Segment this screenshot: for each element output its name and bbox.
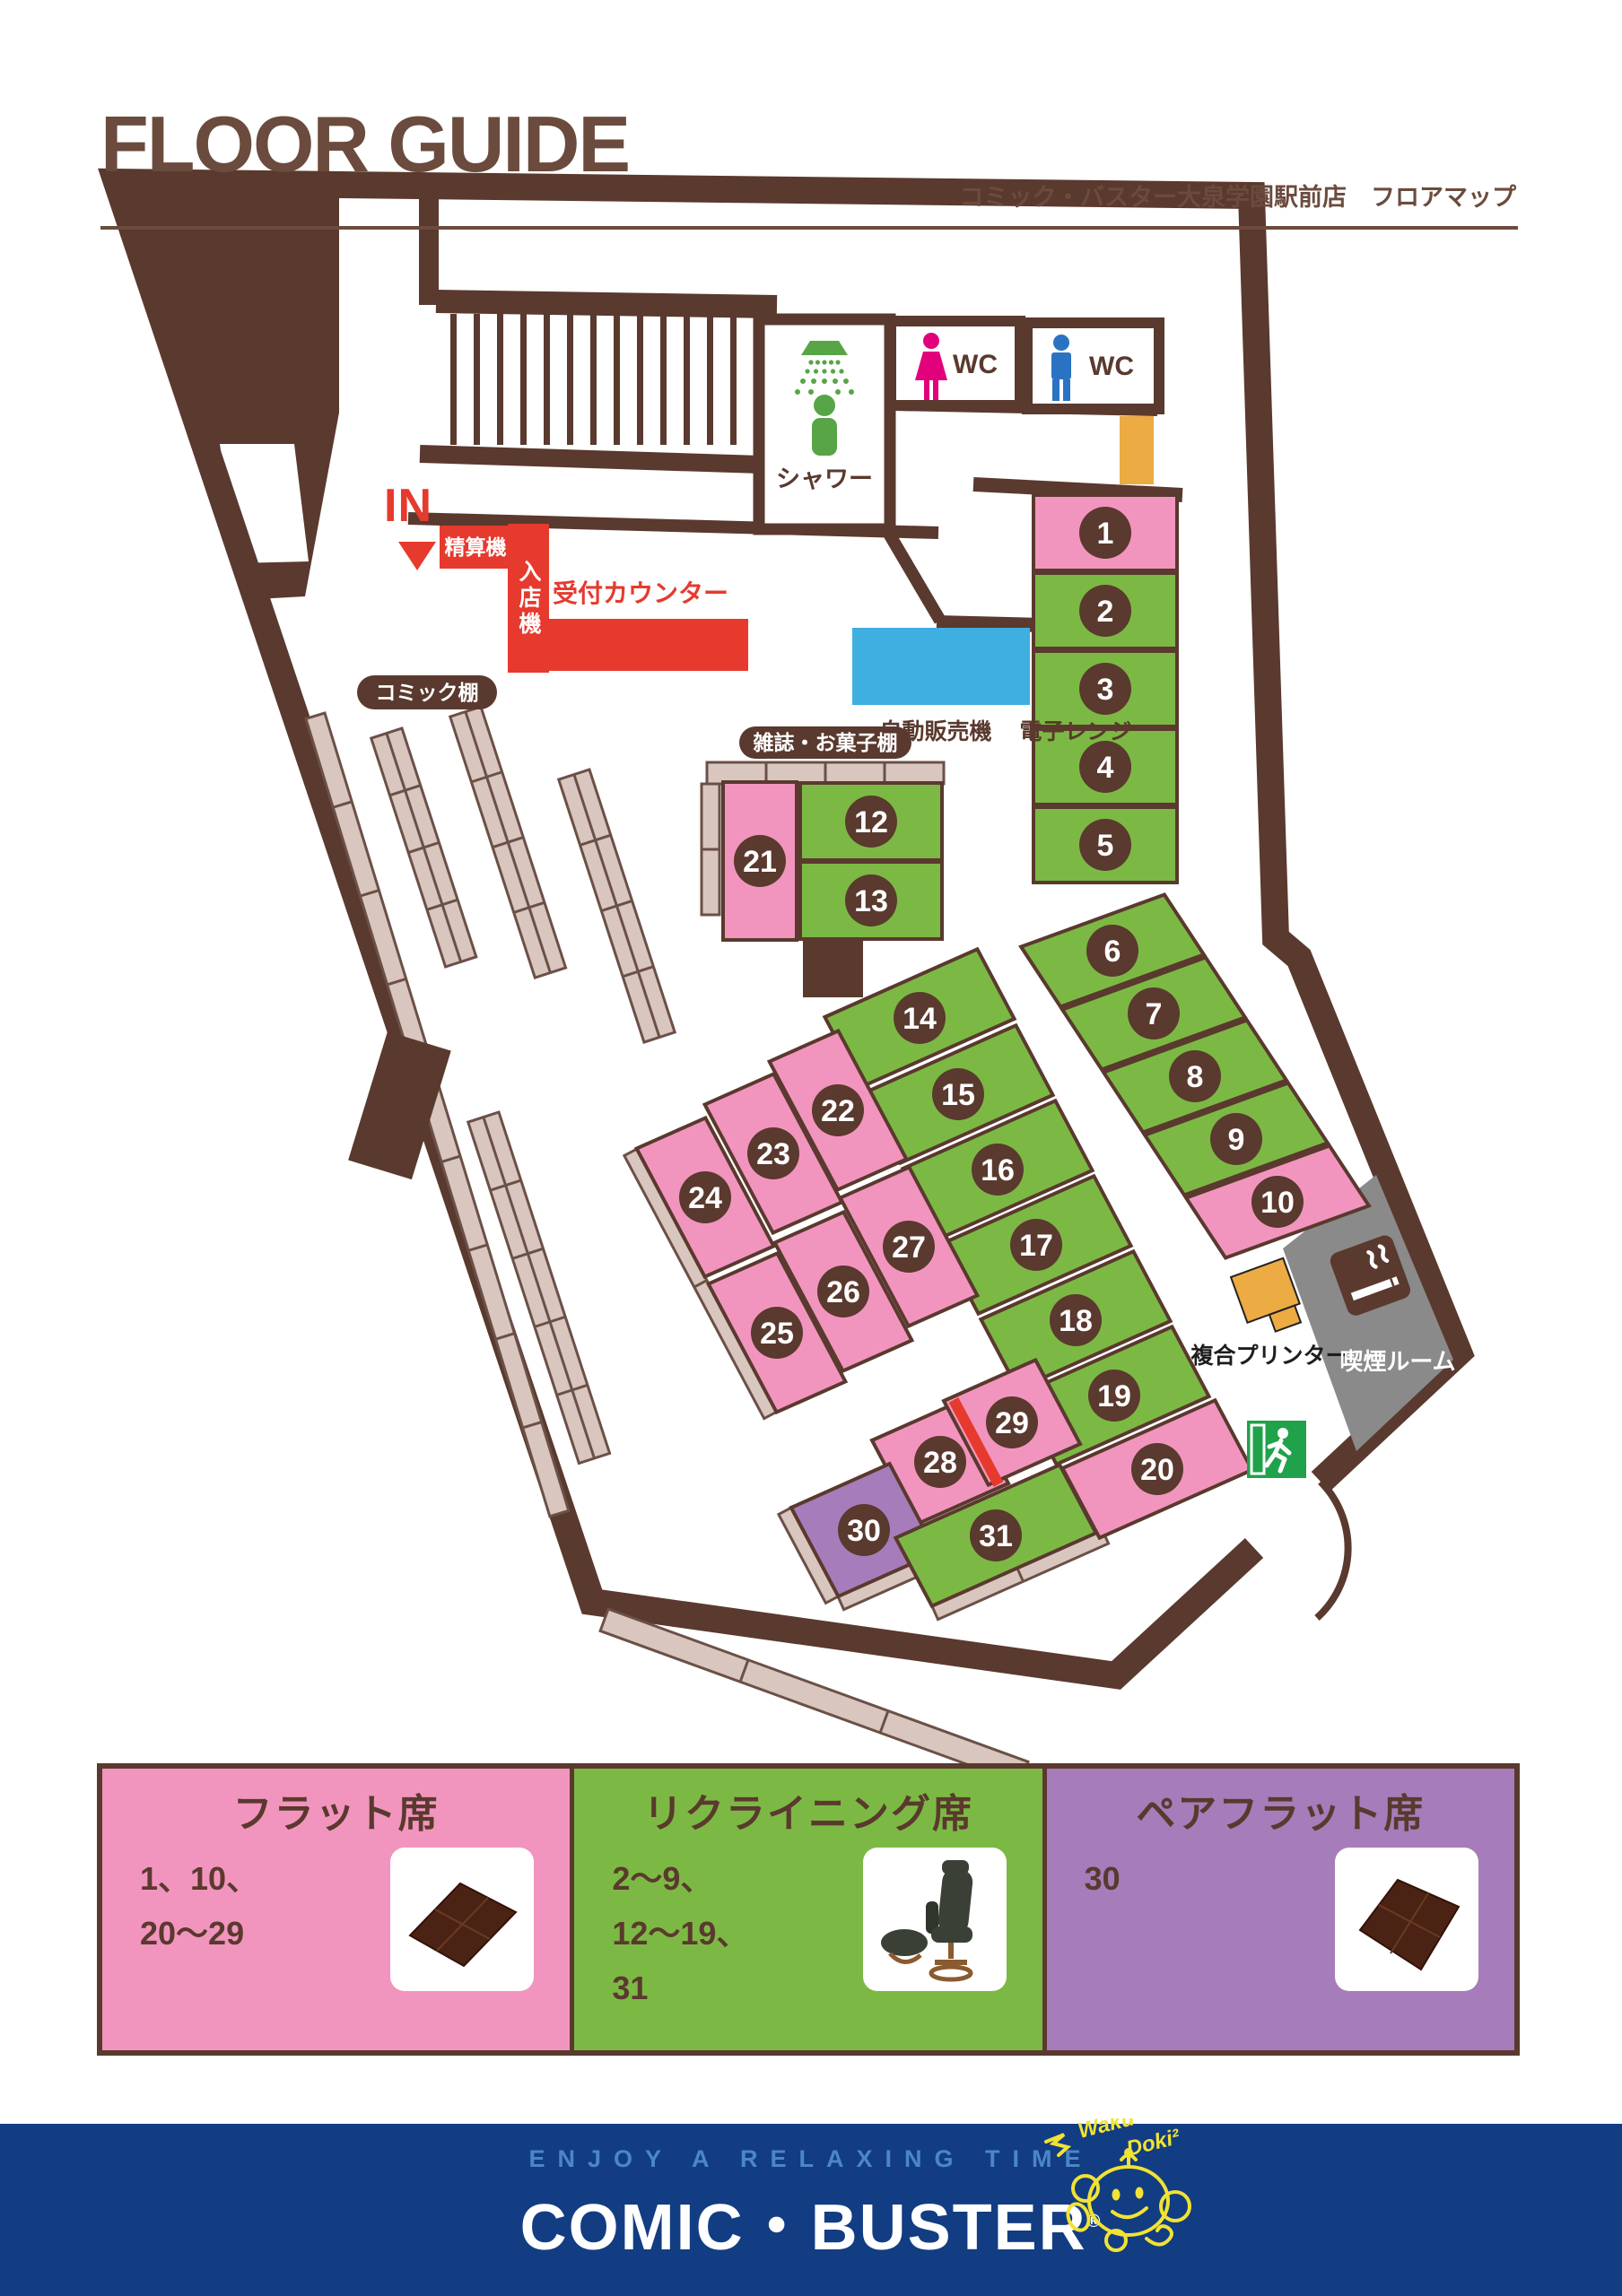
booth-13: 13: [800, 862, 942, 939]
booth-number: 1: [1097, 517, 1114, 551]
stairs: [450, 314, 760, 445]
title-underline: [100, 226, 1518, 230]
entry-machine-label: 入店機: [512, 560, 545, 638]
legend-pair-panel: ペアフラット席 30: [1042, 1769, 1514, 2050]
flat-mat-illustration: [390, 1848, 534, 1991]
booth-number: 6: [1104, 935, 1121, 969]
entrance-arrow-icon: [398, 542, 436, 570]
smoking-room-label: 喫煙ルーム: [1335, 1344, 1461, 1377]
legend-recline-panel: リクライニング席 2〜9、 12〜19、 31: [570, 1769, 1042, 2050]
payment-machine: 精算機: [440, 526, 511, 569]
booth-number: 3: [1097, 673, 1114, 707]
recliner-illustration: [863, 1848, 1007, 1991]
legend-recline-line3: 31: [612, 1961, 748, 2015]
legend-recline-line1: 2〜9、: [612, 1851, 748, 1906]
booth-21: 21: [723, 782, 797, 940]
booth-number: 9: [1228, 1123, 1245, 1157]
legend-flat-panel: フラット席 1、10、 20〜29: [102, 1769, 570, 2050]
legend-recline-numbers: 2〜9、 12〜19、 31: [612, 1851, 748, 2016]
booth-number: 17: [1019, 1229, 1053, 1263]
printer-label: 複合プリンター: [1186, 1338, 1353, 1370]
booth-number: 4: [1097, 751, 1114, 785]
booth-number: 29: [995, 1406, 1029, 1440]
booth-number: 27: [892, 1231, 926, 1265]
reception-label: 受付カウンター: [553, 574, 786, 610]
booth-number: 12: [854, 805, 888, 839]
shower-label: シャワー: [759, 459, 890, 494]
mascot-icon: Waku Doki²: [1039, 2118, 1209, 2253]
booth-number: 15: [941, 1078, 975, 1112]
entrance-in-label: IN: [384, 479, 432, 533]
brand-text: COMIC・BUSTER: [520, 2192, 1087, 2264]
page-subtitle: コミック・バスター大泉学園駅前店 フロアマップ: [709, 178, 1516, 213]
pair-seat-photo: [1335, 1848, 1478, 1991]
right-wall-cabinet: [1120, 416, 1154, 484]
booth-5: 5: [1033, 807, 1177, 883]
recline-seat-photo: [863, 1848, 1007, 1991]
flat-seat-photo: [390, 1848, 534, 1991]
booth-number: 23: [756, 1137, 790, 1171]
booth-number: 22: [821, 1094, 855, 1128]
legend-flat-line1: 1、10、: [140, 1851, 258, 1906]
microwave-label: 電子レンジ: [1008, 714, 1143, 746]
legend-recline-line2: 12〜19、: [612, 1906, 748, 1961]
legend-pair-line1: 30: [1085, 1851, 1121, 1906]
booth-number: 16: [981, 1153, 1015, 1187]
legend: フラット席 1、10、 20〜29 リクライニング席 2〜9、 12〜19、 3…: [97, 1763, 1520, 2056]
page-title: FLOOR GUIDE: [100, 99, 629, 190]
floor-guide-poster: 1234567891012132114151617181920222324252…: [0, 0, 1622, 2296]
legend-pair-numbers: 30: [1085, 1851, 1121, 1906]
pair-mat-illustration: [1335, 1848, 1478, 1991]
legend-pair-title: ペアフラット席: [1047, 1781, 1514, 1839]
booth-number: 26: [826, 1275, 860, 1309]
comic-shelf-label: コミック棚: [357, 675, 497, 709]
legend-flat-title: フラット席: [102, 1781, 570, 1839]
legend-flat-numbers: 1、10、 20〜29: [140, 1851, 258, 1961]
booth-number: 31: [979, 1519, 1013, 1553]
booth-number: 13: [854, 884, 888, 918]
booth-number: 25: [760, 1317, 794, 1351]
booth-number: 20: [1140, 1453, 1174, 1487]
booth-number: 7: [1146, 997, 1163, 1031]
booth-number: 14: [903, 1002, 937, 1036]
legend-flat-line2: 20〜29: [140, 1906, 258, 1961]
booth-number: 18: [1059, 1304, 1093, 1338]
wc-men-label: WC: [1089, 352, 1134, 382]
wc-women-label: WC: [953, 350, 998, 380]
booth-number: 10: [1260, 1186, 1295, 1220]
booth-number: 2: [1097, 595, 1114, 629]
booth-2: 2: [1033, 573, 1177, 648]
magazine-shelf-label: 雑誌・お菓子棚: [739, 726, 911, 759]
booth-number: 30: [847, 1514, 881, 1548]
wall-block-magazine: [803, 940, 863, 997]
booth-12: 12: [800, 783, 942, 860]
booth-number: 8: [1187, 1060, 1204, 1094]
entry-machine: 入店機: [508, 524, 549, 673]
reception-counter: [549, 619, 748, 671]
booth-number: 19: [1097, 1379, 1131, 1413]
legend-recline-title: リクライニング席: [574, 1781, 1042, 1839]
shelf: [559, 770, 675, 1042]
booth-number: 21: [743, 845, 777, 879]
shelf: [702, 784, 719, 915]
booth-number: 5: [1097, 829, 1114, 863]
door-arc: [1317, 1482, 1348, 1618]
exit-icon: [1247, 1421, 1306, 1478]
booth-number: 28: [923, 1446, 957, 1480]
booth-number: 24: [688, 1181, 722, 1215]
vending-machine: [852, 628, 1030, 705]
booth-1: 1: [1033, 495, 1177, 570]
